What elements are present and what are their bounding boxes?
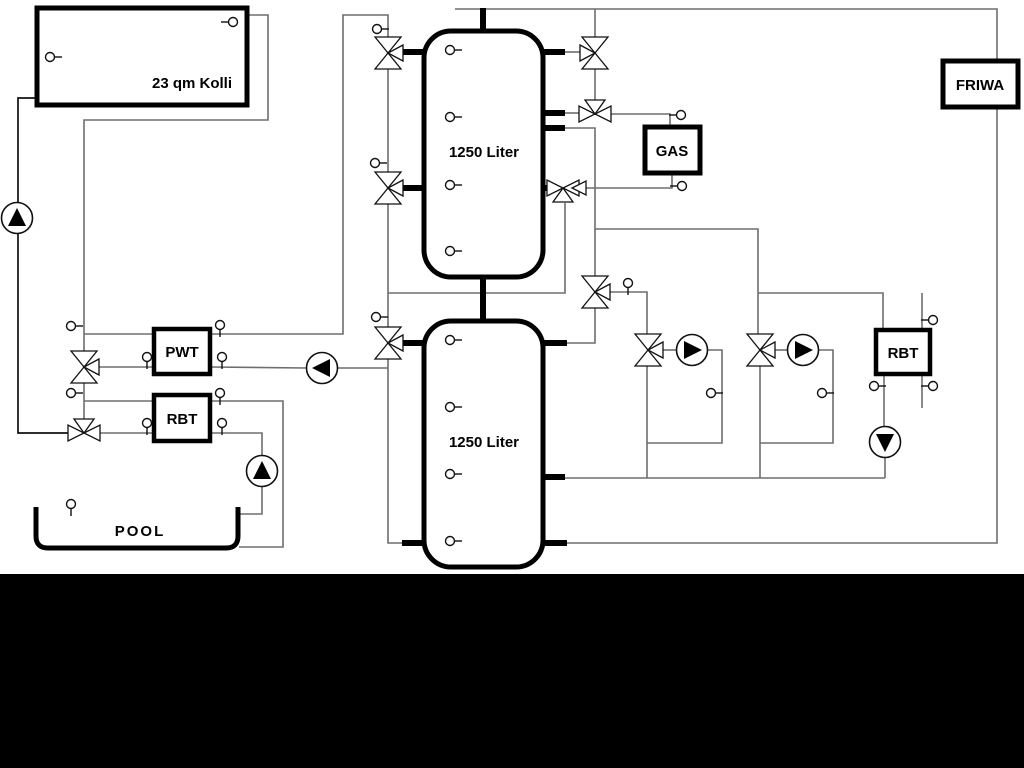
rbt-right-pump-icon: [870, 427, 901, 458]
gas-boiler: GAS: [645, 127, 700, 173]
schematic-canvas: 23 qm Kolli 1250 Liter 1250 Liter GAS FR…: [0, 0, 1024, 768]
collector-label: 23 qm Kolli: [152, 75, 232, 92]
friwa-label: FRIWA: [956, 77, 1004, 94]
bottom-black-bar: [0, 574, 1024, 768]
heating-circuit-1-pump-icon: [677, 335, 708, 366]
rbt-right-label: RBT: [888, 345, 919, 362]
solar-pump-icon: [2, 203, 33, 234]
rbt-left-label: RBT: [167, 411, 198, 428]
tank-bottom-label: 1250 Liter: [449, 434, 519, 451]
gas-label: GAS: [656, 143, 689, 160]
piping-diagram: 23 qm Kolli 1250 Liter 1250 Liter GAS FR…: [0, 0, 1024, 768]
pool-label: POOL: [115, 523, 166, 540]
pwt-label: PWT: [165, 344, 198, 361]
heating-circuit-2-pump-icon: [788, 335, 819, 366]
solar-collector: 23 qm Kolli: [37, 8, 247, 105]
rbt-left-heat-exchanger: RBT: [154, 395, 210, 441]
buffer-tank-top: 1250 Liter: [424, 31, 543, 277]
friwa-station: FRIWA: [943, 61, 1018, 107]
pwt-heat-exchanger: PWT: [154, 329, 210, 374]
buffer-tank-bottom: 1250 Liter: [424, 321, 543, 567]
pwt-pump-icon: [307, 353, 338, 384]
pipe-pwt-out: [210, 367, 306, 368]
rbt-right-heat-exchanger: RBT: [876, 330, 930, 374]
tank-top-label: 1250 Liter: [449, 144, 519, 161]
pool-pump-icon: [247, 456, 278, 487]
